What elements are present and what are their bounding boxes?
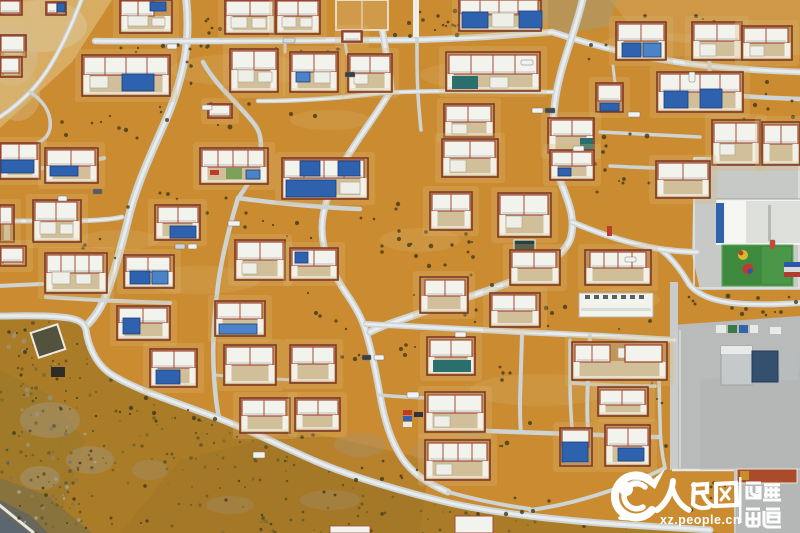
svg-text:xz.people.cn: xz.people.cn [660,513,741,527]
